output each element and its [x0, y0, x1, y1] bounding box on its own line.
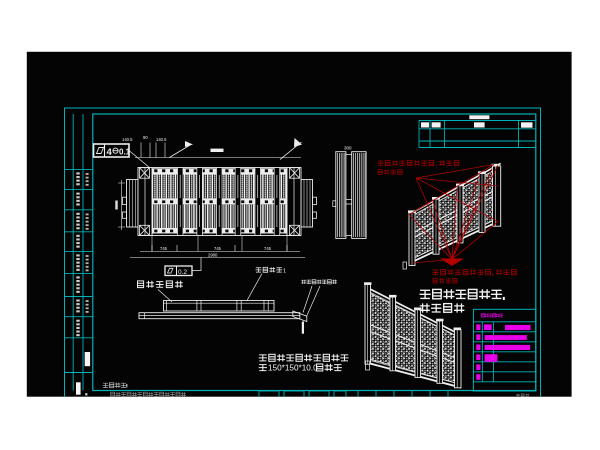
svg-text:90: 90 [143, 135, 148, 140]
svg-text:2980: 2980 [208, 253, 218, 258]
svg-text:745: 745 [264, 246, 272, 251]
svg-text:0.1: 0.1 [119, 148, 131, 157]
svg-text:300: 300 [344, 146, 352, 151]
svg-text:745: 745 [160, 246, 168, 251]
svg-text:745: 745 [214, 246, 222, 251]
svg-text:140.5: 140.5 [156, 137, 167, 142]
svg-text:0.2: 0.2 [178, 269, 187, 276]
svg-text:150*150*10.0: 150*150*10.0 [268, 363, 318, 372]
svg-text:4: 4 [107, 147, 113, 158]
svg-text:140.5: 140.5 [122, 137, 133, 142]
svg-text:1: 1 [283, 269, 286, 275]
